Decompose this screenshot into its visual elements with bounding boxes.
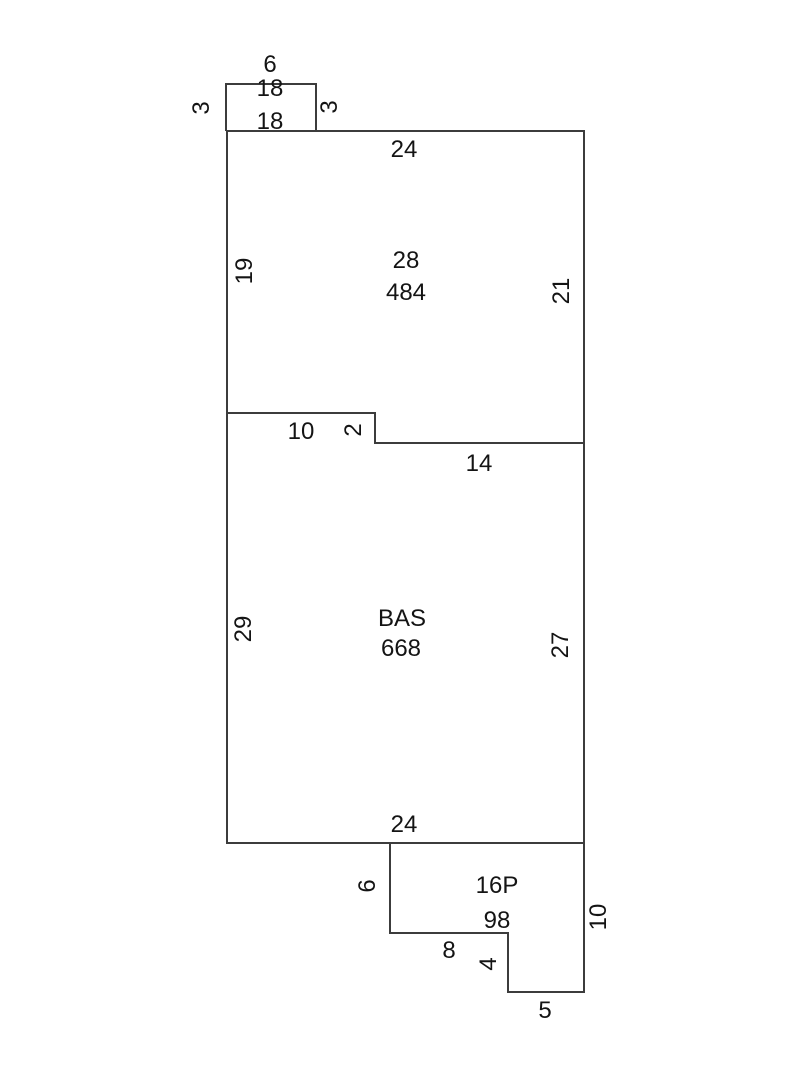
label-porch-region-code: 16P (476, 874, 519, 898)
label-bump-code: 18 (257, 77, 284, 101)
dim-porch-right-height: 10 (587, 904, 611, 931)
label-bas-region-area: 668 (381, 637, 421, 661)
dim-porch-step-drop: 4 (477, 957, 501, 970)
dim-bas-right-height: 27 (549, 632, 573, 659)
dim-bas-bottom-width: 24 (391, 813, 418, 837)
label-bump-area: 18 (257, 110, 284, 134)
label-upper-region-code: 28 (393, 249, 420, 273)
dim-bump-right-height: 3 (318, 100, 342, 113)
dim-divider-lower-width: 14 (466, 452, 493, 476)
dim-upper-right-height: 21 (550, 278, 574, 305)
dim-porch-bottom-width-1: 8 (442, 939, 455, 963)
dim-porch-left-height: 6 (356, 879, 380, 892)
section-divider (227, 413, 584, 443)
label-upper-region-area: 484 (386, 281, 426, 305)
dim-bas-left-height: 29 (232, 616, 256, 643)
dim-divider-step-drop: 2 (342, 423, 366, 436)
label-bas-region-code: BAS (378, 607, 426, 631)
dim-bump-left-height: 3 (190, 101, 214, 114)
dim-divider-step-width: 10 (288, 420, 315, 444)
floor-plan-sketch: 6 18 3 3 18 24 19 28 484 21 10 2 14 29 B… (0, 0, 810, 1080)
label-porch-region-area: 98 (484, 909, 511, 933)
dim-bump-top-width: 6 (263, 53, 276, 77)
dim-upper-left-height: 19 (233, 258, 257, 285)
dim-porch-bottom-width-2: 5 (538, 999, 551, 1023)
dim-upper-top-width: 24 (391, 138, 418, 162)
main-body-outline (227, 131, 584, 843)
